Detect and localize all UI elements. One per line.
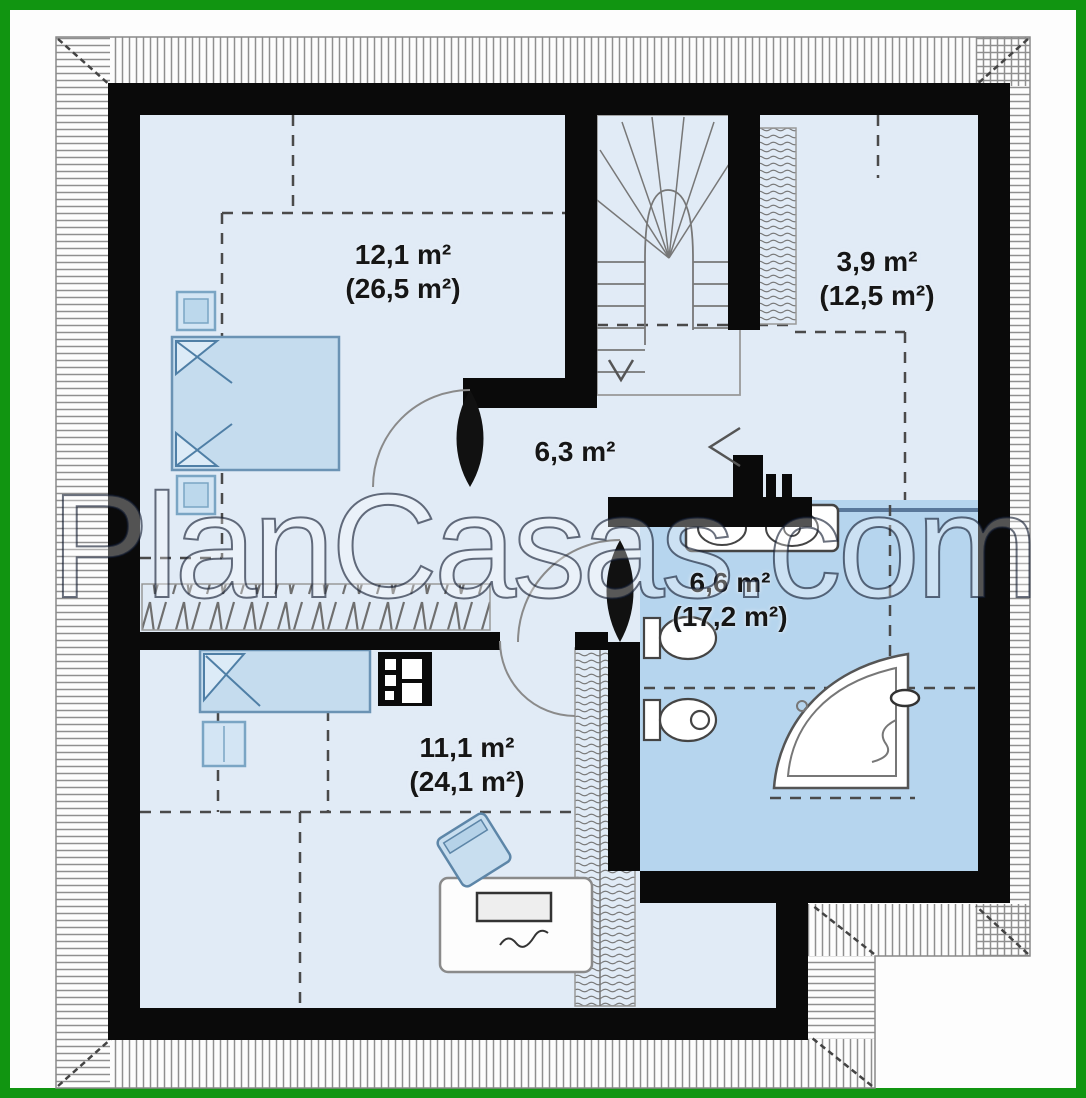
single-bed: [200, 650, 370, 712]
nightstand: [203, 722, 245, 766]
chimney-flue: [378, 652, 432, 706]
room-label-bathroom: 6,6 m² (17,2 m²): [672, 566, 787, 634]
room-gross-area: (26,5 m²): [345, 272, 460, 306]
nightstand: [177, 476, 215, 514]
room-label-bedroom-upper-left: 12,1 m² (26,5 m²): [345, 238, 460, 306]
room-gross-area: (24,1 m²): [409, 765, 524, 799]
laptop: [477, 893, 551, 921]
double-bed: [172, 337, 339, 470]
room-area: 12,1 m²: [345, 238, 460, 272]
room-area: 6,6 m²: [672, 566, 787, 600]
room-gross-area: (12,5 m²): [819, 279, 934, 313]
floor-plan-page: 12,1 m² (26,5 m²) 3,9 m² (12,5 m²) 6,3 m…: [0, 0, 1086, 1098]
bidet: [644, 699, 716, 741]
room-area: 3,9 m²: [819, 245, 934, 279]
room-area: 6,3 m²: [535, 435, 616, 469]
bathtub-faucet: [891, 690, 919, 706]
floor-plan-drawing: [0, 0, 1086, 1098]
bathroom-floor: [640, 500, 978, 871]
room-label-storage-upper-right: 3,9 m² (12,5 m²): [819, 245, 934, 313]
room-gross-area: (17,2 m²): [672, 600, 787, 634]
room-label-hall-center: 6,3 m²: [535, 435, 616, 469]
nightstand: [177, 292, 215, 330]
room-label-room-lower: 11,1 m² (24,1 m²): [409, 731, 524, 799]
room-area: 11,1 m²: [409, 731, 524, 765]
desk: [440, 878, 592, 972]
wardrobe: [142, 584, 490, 630]
